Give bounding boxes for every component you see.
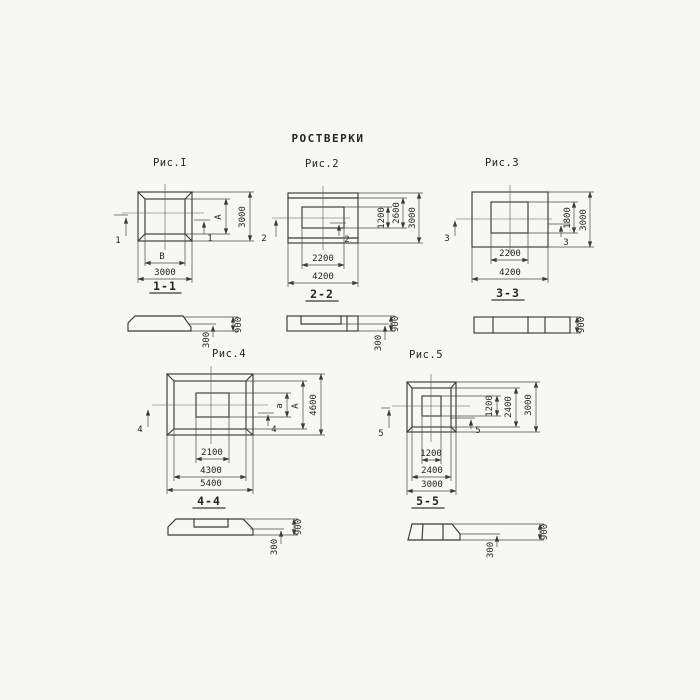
fig5-section-step: 300 <box>486 542 496 558</box>
fig1-dim-inner-width: В <box>159 252 164 262</box>
fig5-section-label: 5-5 <box>416 494 440 508</box>
fig2-dim-bottom-outer: 4200 <box>312 272 334 282</box>
fig4-section-label: 4-4 <box>197 494 221 508</box>
fig2-dim-right-outer: 3000 <box>408 207 418 229</box>
page-background <box>0 0 700 700</box>
fig4-title: Рис.4 <box>212 348 246 360</box>
fig5-dim-bottom-mid: 2400 <box>421 466 443 476</box>
fig1-section-height: 900 <box>234 317 244 333</box>
fig4-dim-right-mid: А <box>291 403 301 409</box>
fig1-title: Рис.I <box>153 157 187 169</box>
fig5-dim-bottom-inner: 1200 <box>420 449 442 459</box>
page-title: РОСТВЕРКИ <box>291 132 364 145</box>
fig2-dim-bottom-inner: 2200 <box>312 254 334 264</box>
fig3-title: Рис.3 <box>485 157 519 169</box>
fig4-dim-right-inner: а <box>275 403 285 408</box>
fig5-cut-mark-right: 5 <box>475 426 480 436</box>
fig5-dim-right-outer: 3000 <box>524 394 534 416</box>
fig1-cut-mark-left: 1 <box>115 236 120 246</box>
fig1-cut-mark-right: 1 <box>207 234 212 244</box>
fig3-dim-bottom-outer: 4200 <box>499 268 521 278</box>
fig1-dim-right: 3000 <box>238 206 248 228</box>
fig4-section-height: 900 <box>294 519 304 535</box>
fig1-section-label: 1-1 <box>153 279 177 293</box>
fig2-dim-right-inner: 1200 <box>377 207 387 229</box>
fig5-dim-right-mid: 2400 <box>504 396 514 418</box>
fig3-cut-mark-left: 3 <box>444 234 449 244</box>
pile-cap-drawing-canvas: РОСТВЕРКИ Рис.I 1 1 В 3000 <box>0 0 700 700</box>
fig3-dim-bottom-inner: 2200 <box>499 249 521 259</box>
fig4-section-step: 300 <box>270 539 280 555</box>
fig1-section-step: 300 <box>202 332 212 348</box>
fig3-section-height: 900 <box>577 317 587 333</box>
fig2-title: Рис.2 <box>305 158 339 170</box>
fig5-title: Рис.5 <box>409 349 443 361</box>
fig5-cut-mark-left: 5 <box>378 429 383 439</box>
fig4-dim-bottom-inner: 2100 <box>201 448 223 458</box>
fig4-cut-mark-right: 4 <box>271 425 276 435</box>
fig3-section-label: 3-3 <box>496 286 520 300</box>
fig1-dim-bottom: 3000 <box>154 268 176 278</box>
fig4-cut-mark-left: 4 <box>137 425 142 435</box>
fig3-cut-mark-right: 3 <box>563 238 568 248</box>
fig3-dim-right-inner: 1800 <box>563 207 573 229</box>
fig5-dim-bottom-outer: 3000 <box>421 480 443 490</box>
fig2-section-step: 300 <box>374 335 384 351</box>
fig4-dim-bottom-outer: 5400 <box>200 479 222 489</box>
fig3-dim-right-outer: 3000 <box>579 209 589 231</box>
fig1-dim-inner-height: А <box>214 214 224 220</box>
fig4-dim-bottom-mid: 4300 <box>200 466 222 476</box>
fig5-dim-right-inner: 1200 <box>485 395 495 417</box>
fig2-cut-mark-left: 2 <box>261 234 266 244</box>
fig5-section-height: 900 <box>540 524 550 540</box>
fig4-dim-right-outer: 4600 <box>309 394 319 416</box>
fig2-cut-mark-right: 2 <box>344 235 349 245</box>
fig2-section-label: 2-2 <box>310 287 334 301</box>
fig2-dim-right-mid: 2600 <box>392 202 402 224</box>
fig2-section-height: 900 <box>391 316 401 332</box>
